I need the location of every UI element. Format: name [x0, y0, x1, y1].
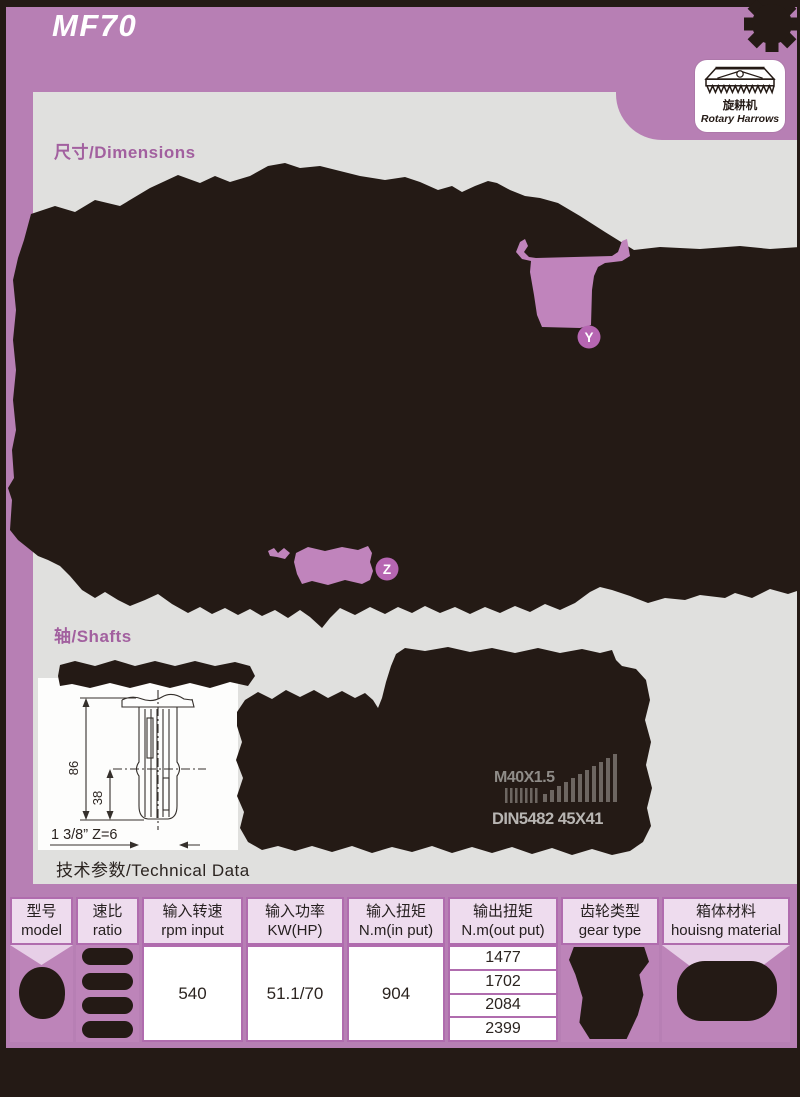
- dim-total-label: 86: [66, 761, 81, 775]
- cell-housing-redacted: [662, 945, 790, 1042]
- output-torque-row-1: 1477: [450, 947, 556, 969]
- category-badge: 旋耕机 Rotary Harrows: [695, 60, 785, 132]
- catalog-page: MF70 旋耕机 Rotary Harrows 尺寸/Dimensions 轴/…: [0, 0, 800, 1097]
- cell-input-torque: 904: [347, 945, 445, 1042]
- shaft-drawing-panel: 86 38 1 3/8” Z=6: [38, 678, 238, 850]
- splined-shaft-drawing: 86 38 1 3/8” Z=6: [38, 678, 238, 850]
- model-redaction-blob: [19, 967, 65, 1019]
- ratio-redaction-4: [82, 1021, 133, 1038]
- cell-output-torque-group: 1477 1702 2084 2399: [448, 945, 558, 1042]
- cell-model-redacted: [10, 945, 73, 1042]
- gear-type-redaction-blob: [569, 947, 649, 1039]
- badge-label-en: Rotary Harrows: [701, 113, 779, 126]
- header-housing-material: 箱体材料 houisng material: [662, 897, 790, 945]
- header-housing-en: houisng material: [671, 921, 781, 941]
- page-title: MF70: [52, 8, 137, 44]
- ratio-redaction-1: [82, 948, 133, 965]
- header-ratio-zh: 速比: [92, 902, 122, 922]
- dimensions-section-label: 尺寸/Dimensions: [54, 138, 196, 163]
- output-torque-row-3: 2084: [450, 995, 556, 1017]
- cell-input-power: 51.1/70: [246, 945, 344, 1042]
- header-torque-out-en: N.m(out put): [461, 921, 544, 941]
- header-power-zh: 输入功率: [265, 902, 325, 922]
- header-gear-type: 齿轮类型 gear type: [561, 897, 659, 945]
- header-input-torque: 输入扭矩 N.m(in put): [347, 897, 445, 945]
- header-ratio: 速比 ratio: [76, 897, 139, 945]
- cell-gear-type-redacted: [561, 945, 659, 1042]
- cell-ratio-redacted: [76, 945, 139, 1042]
- shafts-section-label: 轴/Shafts: [54, 622, 132, 647]
- header-output-torque: 输出扭矩 N.m(out put): [448, 897, 558, 945]
- header-rpm-zh: 输入转速: [162, 902, 222, 922]
- housing-redaction-blob: [677, 961, 777, 1021]
- header-gear-en: gear type: [579, 921, 642, 941]
- model-cell-decoration: [10, 945, 73, 965]
- header-torque-in-en: N.m(in put): [359, 921, 433, 941]
- header-rpm-input: 输入转速 rpm input: [142, 897, 243, 945]
- header-housing-zh: 箱体材料: [696, 902, 756, 922]
- footer-redacted-band: [0, 1048, 800, 1097]
- dim-spline-label: 38: [90, 791, 105, 805]
- spline-spec-label: 1 3/8” Z=6: [51, 827, 118, 843]
- header-power-en: KW(HP): [268, 921, 323, 941]
- header-rpm-en: rpm input: [161, 921, 224, 941]
- header-torque-out-zh: 输出扭矩: [473, 902, 533, 922]
- badge-label-zh: 旋耕机: [723, 100, 758, 113]
- ratio-redaction-2: [82, 973, 133, 990]
- cell-rpm-input: 540: [142, 945, 243, 1042]
- header-model: 型号 model: [10, 897, 73, 945]
- rotary-harrow-icon: [702, 65, 778, 99]
- output-torque-row-4: 2399: [450, 1018, 556, 1040]
- header-model-en: model: [21, 921, 62, 941]
- technical-section-label: 技术参数/Technical Data: [56, 856, 250, 881]
- header-ratio-en: ratio: [93, 921, 122, 941]
- ratio-redaction-3: [82, 997, 133, 1014]
- header-model-zh: 型号: [26, 902, 56, 922]
- gear-icon: [740, 0, 800, 56]
- header-torque-in-zh: 输入扭矩: [366, 902, 426, 922]
- header-gear-zh: 齿轮类型: [580, 902, 640, 922]
- header-input-power: 输入功率 KW(HP): [246, 897, 344, 945]
- output-torque-row-2: 1702: [450, 971, 556, 993]
